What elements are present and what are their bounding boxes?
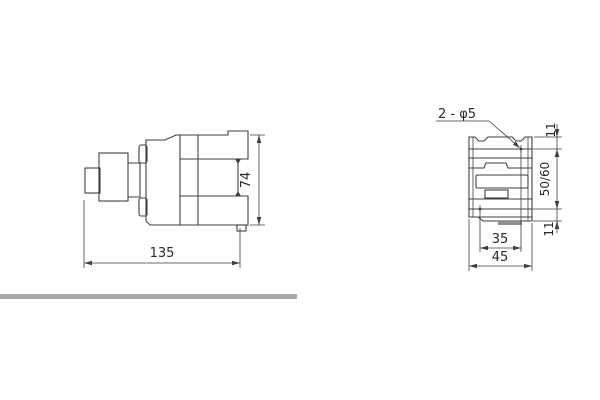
divider-bar xyxy=(0,294,297,299)
side-height-dim-label: 74 xyxy=(239,172,254,189)
front-window-large xyxy=(476,175,528,188)
side-neck-lines xyxy=(128,163,140,197)
front-hole-crosses xyxy=(476,145,525,213)
holes-leader-line xyxy=(436,121,519,147)
arrow-span-bottom xyxy=(555,201,560,209)
front-window-small xyxy=(485,190,508,198)
front-dimensions: 2 - φ5 35 45 11 50/60 11 xyxy=(436,107,562,271)
front-width-dim-label: 45 xyxy=(492,250,509,265)
arrow-135-right xyxy=(232,261,240,266)
front-body-outline xyxy=(469,137,532,221)
arrow-45-right xyxy=(524,264,532,269)
arrow-35-left xyxy=(480,246,488,251)
arrow-span-top xyxy=(555,149,560,157)
front-din-clip xyxy=(498,221,522,225)
top-offset-dim-label: 11 xyxy=(544,122,558,137)
hole-spacing-dim-label: 35 xyxy=(492,232,509,247)
snap-arrow-bottom xyxy=(235,191,241,196)
side-din-foot xyxy=(237,225,246,231)
technical-drawing-canvas: 135 74 xyxy=(0,0,600,400)
side-end-block xyxy=(85,168,100,193)
arrow-74-top xyxy=(257,135,262,143)
arrow-135-left xyxy=(84,261,92,266)
front-hole-marks xyxy=(479,148,523,211)
dimension-drawing: 135 74 xyxy=(0,0,600,400)
side-view: 135 74 xyxy=(84,131,265,268)
arrow-45-left xyxy=(469,264,477,269)
bottom-offset-dim-label: 11 xyxy=(542,221,556,236)
side-width-dim-label: 135 xyxy=(150,246,175,261)
side-back-block xyxy=(99,153,128,201)
side-body-outline xyxy=(146,131,248,225)
side-internal-lines xyxy=(180,135,238,225)
rail-span-dim-label: 50/60 xyxy=(538,162,552,197)
holes-note-label: 2 - φ5 xyxy=(438,107,476,122)
front-horizontal-lines xyxy=(469,149,532,217)
snap-arrow-top xyxy=(235,159,241,164)
arrow-35-right xyxy=(513,246,521,251)
arrow-74-bottom xyxy=(257,217,262,225)
front-view: 2 - φ5 35 45 11 50/60 11 xyxy=(436,107,562,271)
